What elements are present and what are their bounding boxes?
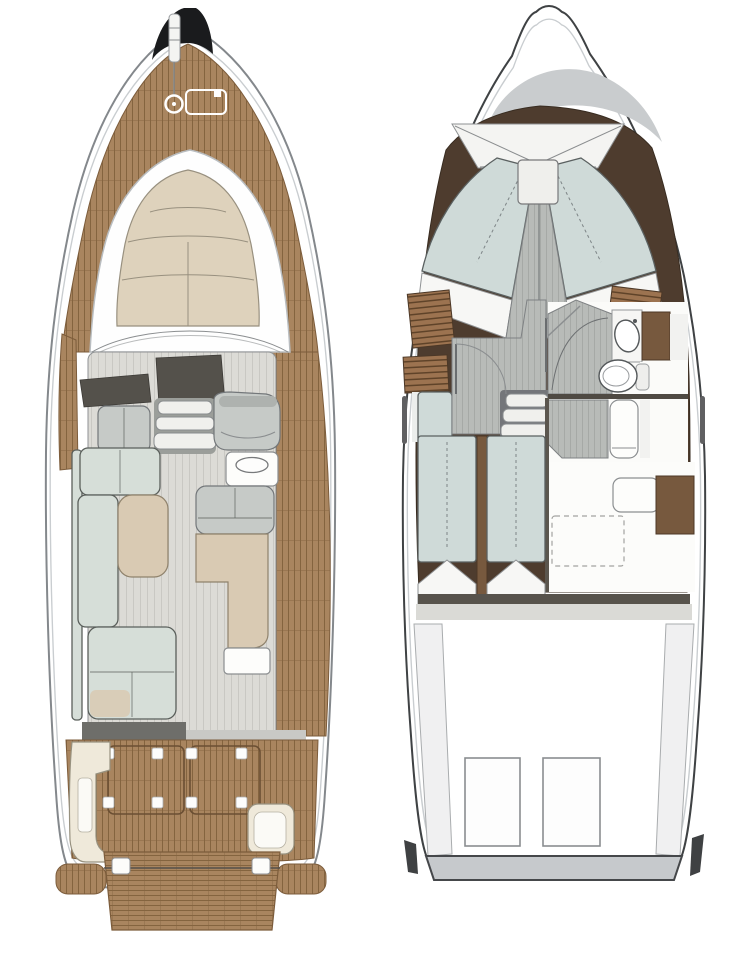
toilet-tank <box>636 364 649 390</box>
stern-teak-cap-starboard <box>276 864 326 894</box>
toilet-bowl <box>599 360 637 392</box>
port-side-seat <box>418 392 452 442</box>
mid-cabin-floor-strip <box>477 436 487 606</box>
helm-seat <box>214 392 280 450</box>
stair-step-2 <box>503 409 549 422</box>
locker-slats-port-lower <box>403 355 449 393</box>
aft-head-side-white <box>640 400 650 458</box>
engine-starboard <box>543 758 600 846</box>
aft-lounge-cabinet <box>613 478 659 512</box>
main-deck-plan <box>46 8 335 930</box>
cockpit-seat-starboard <box>248 804 294 854</box>
engine-port <box>465 758 520 846</box>
floorplan-svg <box>0 0 731 960</box>
engine-bulkhead-step <box>416 604 692 620</box>
swim-platform <box>104 852 280 930</box>
hatch-fastener <box>152 748 163 759</box>
aft-head-bench <box>610 400 638 458</box>
yacht-floorplan-canvas <box>0 0 731 960</box>
hatch-fastener <box>236 797 247 808</box>
stair-step-1 <box>158 401 212 414</box>
companionway-stairs <box>154 398 216 454</box>
port-instrument-panel <box>80 374 151 407</box>
stern-teak-cap-port <box>56 864 106 894</box>
hatch-fastener <box>186 797 197 808</box>
anchor-shaft <box>169 14 180 62</box>
dinette-table <box>118 495 168 577</box>
bench-cushion <box>78 778 92 832</box>
starboard-walkway-teak <box>272 352 330 736</box>
wetbar-sink <box>236 458 268 473</box>
platform-cleat-starboard <box>252 858 270 874</box>
stair-step-3 <box>154 433 216 449</box>
bathroom-aft-wall <box>548 394 688 399</box>
platform-cleat-port <box>112 858 130 874</box>
aft-facing-seat <box>196 486 274 534</box>
hatch-fastener <box>152 797 163 808</box>
hull-window-starboard <box>700 396 705 444</box>
mid-cabin <box>418 436 545 606</box>
transom-plate <box>426 856 682 880</box>
aft-lounge-area <box>549 462 695 592</box>
engine-bulkhead-dark <box>418 594 690 604</box>
aft-head-compartment <box>548 399 688 463</box>
vberth-step-locker <box>518 160 558 204</box>
stair-step-1 <box>506 394 548 407</box>
trim-tab-starboard <box>690 834 704 876</box>
hatch-fastener <box>103 797 114 808</box>
hull-window-port <box>402 396 407 444</box>
bathroom <box>548 300 688 399</box>
hatch-fastener <box>186 748 197 759</box>
sink-faucet <box>633 319 637 323</box>
sofa-cushion-accent <box>90 690 130 717</box>
sofa-seat-side <box>78 495 118 627</box>
galley-cabinet <box>224 648 270 674</box>
salon-threshold-dark <box>82 722 186 740</box>
windlass-center <box>172 102 176 106</box>
lower-deck-plan <box>402 6 705 880</box>
stair-step-2 <box>156 417 214 430</box>
aft-head-shower-floor <box>548 400 608 458</box>
trim-tab-port <box>404 840 418 874</box>
locker-slats-port-upper <box>407 290 454 348</box>
bathroom-cabinet <box>642 312 670 360</box>
aft-lounge-sideboard <box>656 476 694 534</box>
deck-fill-cap <box>214 90 221 97</box>
bathroom-corner-white <box>670 314 688 360</box>
hatch-fastener <box>236 748 247 759</box>
helm-seat-back <box>219 396 277 407</box>
corner-seat-cushion <box>254 812 286 848</box>
